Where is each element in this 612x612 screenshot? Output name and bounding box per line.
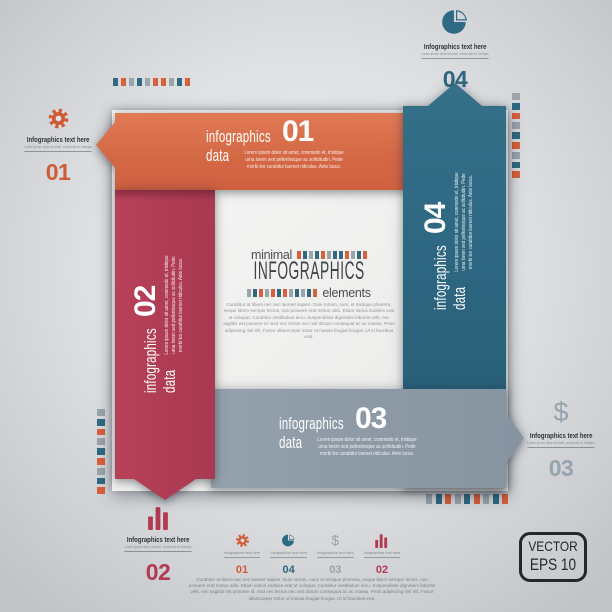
dot-square: [351, 251, 355, 259]
callout-03: $ Infographics text here Lorem ipsum dol…: [510, 399, 612, 482]
legend-number: 01: [236, 564, 248, 576]
dollar-icon: $: [328, 533, 343, 548]
callout-number: 03: [549, 455, 574, 482]
dot-square: [363, 251, 367, 259]
tail-text: elements: [322, 286, 370, 300]
dots-strip-top: [113, 78, 190, 86]
ribbon-lorem: Lorem ipsum dolor sit amet, commodo et, …: [454, 174, 475, 284]
tail-row: elements: [221, 286, 397, 300]
legend-item-03: $ Infographics text here 03: [313, 533, 357, 576]
callout-subtext: Lorem ipsum dolor sit amet, commodo et, …: [124, 545, 191, 552]
callout-02: Infographics text here Lorem ipsum dolor…: [108, 505, 208, 586]
ribbon-03-gray: infographics data 03 Lorem ipsum dolor s…: [211, 389, 524, 488]
badge-line2: EPS 10: [530, 555, 576, 575]
dot-square: [512, 132, 520, 139]
legend-item-04: Infographics text here 04: [267, 533, 311, 576]
dot-square: [153, 78, 158, 86]
dots-strip-bottom: [426, 494, 508, 504]
gear-icon: [47, 107, 70, 130]
dot-square: [512, 113, 520, 120]
dot-square: [97, 478, 105, 485]
callout-subtext: Lorem ipsum dolor sit amet, commodo et, …: [527, 441, 594, 448]
dot-square: [483, 494, 489, 504]
callout-label: Infographics text here: [530, 431, 593, 440]
dot-square: [357, 251, 361, 259]
dot-square: [333, 251, 337, 259]
ribbon-number: 01: [282, 115, 313, 149]
dot-square: [289, 289, 293, 297]
callout-number: 01: [46, 159, 71, 186]
ribbon-lorem: Lorem ipsum dolor sit amet, commodo et, …: [305, 437, 415, 458]
ribbon-02-red: infographics data 02 Lorem ipsum dolor s…: [115, 190, 215, 500]
dot-square: [455, 494, 461, 504]
legend-label: Infographics text here: [224, 551, 261, 558]
legend-label: Infographics text here: [364, 551, 401, 558]
bar-chart-icon: [374, 533, 389, 548]
callout-label: Infographics text here: [424, 42, 487, 51]
bar-chart-icon: [147, 505, 170, 530]
callout-subtext: Lorem ipsum dolor sit amet, commodo et, …: [421, 52, 488, 59]
dot-square: [321, 251, 325, 259]
ribbon-lorem: Lorem ipsum dolor sit amet, commodo et, …: [164, 257, 185, 367]
legend-item-02: Infographics text here 02: [360, 533, 404, 576]
dot-square: [297, 251, 301, 259]
dot-square: [121, 78, 126, 86]
dot-square: [259, 289, 263, 297]
dot-square: [339, 251, 343, 259]
legend-label: Infographics text here: [317, 551, 354, 558]
dot-square: [97, 458, 105, 465]
dot-square: [97, 419, 105, 426]
callout-subtext: Lorem ipsum dolor sit amet, commodo et, …: [24, 145, 91, 152]
dots-row-top: [297, 251, 367, 259]
callout-number: 02: [146, 559, 171, 586]
ribbon-number: 04: [419, 203, 453, 234]
ribbon-01-content: infographics data 01 Lorem ipsum dolor s…: [196, 113, 404, 190]
dots-strip-left: [97, 409, 105, 494]
dot-square: [436, 494, 442, 504]
dots-row-bottom: [247, 289, 317, 297]
callout-label: Infographics text here: [27, 135, 90, 144]
dot-square: [464, 494, 470, 504]
dot-square: [177, 78, 182, 86]
dot-square: [283, 289, 287, 297]
legend-paragraph: Curabitur at libero nec nec laoreet sapi…: [188, 577, 436, 602]
ribbon-01-orange: infographics data 01 Lorem ipsum dolor s…: [96, 113, 410, 190]
dot-square: [277, 289, 281, 297]
dot-square: [129, 78, 134, 86]
infographic-canvas: minimal INFOGRAPHICS elements Curabitur …: [0, 0, 612, 612]
ribbon-04-content: infographics data 04 Lorem ipsum dolor s…: [417, 80, 506, 320]
dot-square: [185, 78, 190, 86]
dot-square: [253, 289, 257, 297]
dot-square: [295, 289, 299, 297]
dot-square: [512, 142, 520, 149]
dot-square: [265, 289, 269, 297]
dot-square: [512, 152, 520, 159]
dot-square: [97, 429, 105, 436]
dot-square: [97, 438, 105, 445]
dot-square: [161, 78, 166, 86]
dot-square: [301, 289, 305, 297]
dot-square: [445, 494, 451, 504]
dot-square: [512, 122, 520, 129]
ribbon-02-content: infographics data 02 Lorem ipsum dolor s…: [127, 163, 215, 403]
badge-line1: VECTOR: [528, 538, 577, 554]
ribbon-number: 03: [355, 402, 386, 436]
dot-square: [97, 487, 105, 494]
dot-square: [315, 251, 319, 259]
legend-item-01: Infographics text here 01: [220, 533, 264, 576]
dot-square: [247, 289, 251, 297]
dots-strip-right: [512, 93, 520, 178]
center-title: INFOGRAPHICS: [215, 257, 403, 286]
dot-square: [426, 494, 432, 504]
dot-square: [345, 251, 349, 259]
dot-square: [307, 289, 311, 297]
dot-square: [145, 78, 150, 86]
dot-square: [502, 494, 508, 504]
ribbon-number: 02: [129, 286, 163, 317]
dot-square: [309, 251, 313, 259]
center-panel: minimal INFOGRAPHICS elements Curabitur …: [215, 193, 403, 389]
legend-label: Infographics text here: [270, 551, 307, 558]
callout-label: Infographics text here: [127, 535, 190, 544]
ribbon-lorem: Lorem ipsum dolor sit amet, commodo et, …: [232, 150, 342, 171]
vector-eps-badge: VECTOR EPS 10: [519, 532, 587, 582]
dot-square: [169, 78, 174, 86]
dot-square: [313, 289, 317, 297]
pie-chart-icon: [281, 533, 296, 548]
dot-square: [512, 162, 520, 169]
legend-number: 04: [283, 564, 295, 576]
dot-square: [137, 78, 142, 86]
dollar-icon: $: [553, 399, 568, 426]
ribbon-03-content: infographics data 03 Lorem ipsum dolor s…: [269, 400, 489, 477]
dot-square: [327, 251, 331, 259]
callout-04: Infographics text here Lorem ipsum dolor…: [402, 7, 508, 93]
dot-square: [474, 494, 480, 504]
pie-chart-icon: [440, 7, 470, 37]
dot-square: [97, 409, 105, 416]
dot-square: [512, 93, 520, 100]
dot-square: [97, 468, 105, 475]
dot-square: [512, 103, 520, 110]
dot-square: [113, 78, 118, 86]
dot-square: [303, 251, 307, 259]
legend-number: 03: [329, 564, 341, 576]
dot-square: [97, 448, 105, 455]
center-paragraph: Curabitur at libero nec nec laoreet sapi…: [223, 302, 395, 340]
callout-01: Infographics text here Lorem ipsum dolor…: [9, 107, 107, 186]
dot-square: [493, 494, 499, 504]
legend-row: Infographics text here 01 Infographics t…: [220, 533, 404, 576]
dot-square: [512, 171, 520, 178]
gear-icon: [235, 533, 250, 548]
legend-number: 02: [376, 564, 388, 576]
dot-square: [271, 289, 275, 297]
